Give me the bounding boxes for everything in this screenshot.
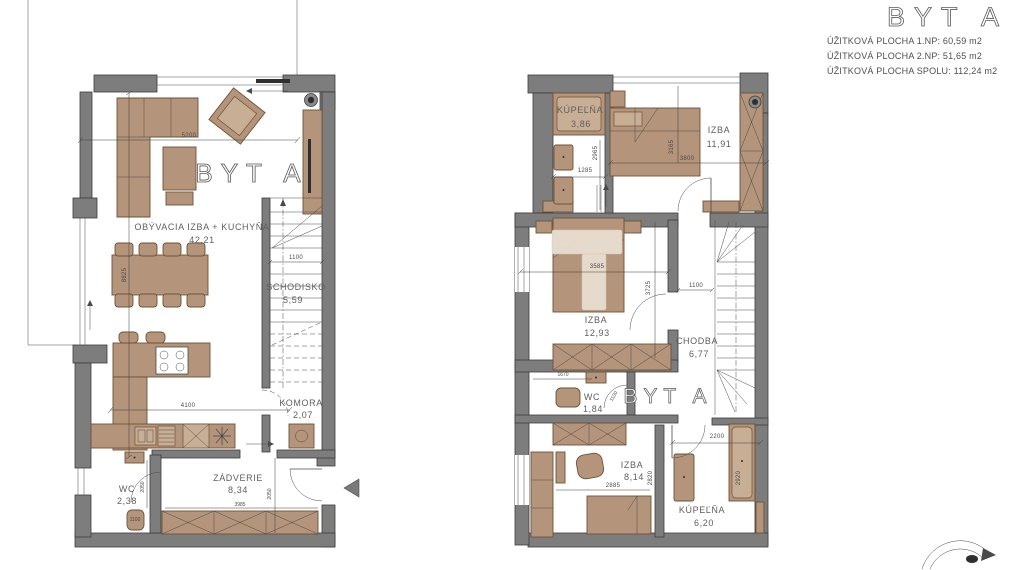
room-area-zadverie: 8,34 — [228, 485, 248, 495]
room-label-living: OBÝVACIA IZBA + KUCHYŇA — [135, 222, 270, 232]
dim-2965: 2965 — [593, 145, 599, 160]
sliding-door-arrow — [246, 441, 274, 447]
dim-2200: 2200 — [710, 434, 725, 440]
dim-8825: 8825 — [122, 267, 128, 282]
column — [305, 94, 318, 107]
room-label-kupelna1: KÚPEĽŇA — [557, 105, 603, 115]
dim-1100-stairs: 1100 — [289, 255, 303, 261]
window-top — [157, 77, 290, 94]
wc2-shelf — [586, 372, 606, 383]
bath2-sink — [674, 454, 694, 501]
dim-4100: 4100 — [181, 403, 196, 409]
dim-2050-wc: 2050 — [140, 481, 146, 492]
room-area-kupelna1: 3,86 — [571, 119, 591, 129]
floor-plan-1: BYT A OBÝVACIA IZBA + KUCHYŇA 42,21 SCHO… — [28, 0, 359, 547]
room-area-chodba: 6,77 — [689, 349, 709, 359]
room-area-wc2: 1,84 — [583, 404, 603, 414]
room-label-izba2: IZBA — [585, 315, 607, 325]
bath1-toilet — [554, 177, 573, 204]
room-area-izba3: 8,14 — [624, 472, 644, 482]
dim-1100-chodba: 1100 — [689, 283, 703, 289]
room-area-wc1: 2,38 — [117, 496, 137, 506]
wc2-toilet — [556, 388, 580, 407]
room-area-komora: 2,07 — [293, 410, 313, 420]
area-line-2: ÚŽITKOVÁ PLOCHA 2.NP: 51,65 m2 — [827, 51, 982, 61]
title-block: BYT A ÚŽITKOVÁ PLOCHA 1.NP: 60,59 m2 ÚŽI… — [827, 2, 1008, 76]
sink — [135, 427, 156, 445]
room-label-izba1: IZBA — [708, 125, 730, 135]
dim-1100-wc: 1100 — [130, 517, 141, 523]
bath1-sink — [554, 145, 573, 170]
ottoman — [166, 192, 193, 205]
dim-3585: 3585 — [590, 264, 605, 270]
dim-3165: 3165 — [669, 139, 675, 154]
dim-5200: 5200 — [182, 133, 197, 139]
wardrobe-1 — [740, 93, 763, 211]
sheet-title: BYT A — [887, 2, 1008, 32]
armchair — [209, 88, 265, 144]
radiator-2 — [703, 201, 739, 212]
floor-plan-2: BYT A KÚPEĽŇA 3,86 IZBA 11,91 IZBA 12,93… — [515, 73, 769, 547]
stove — [156, 347, 188, 374]
apartment-label-2: BYT A — [623, 385, 712, 408]
wardrobe-4 — [531, 452, 553, 537]
bedroom2-door-arc — [630, 294, 666, 330]
room-area-izba2: 12,93 — [584, 328, 610, 338]
room-area-izba1: 11,91 — [707, 139, 732, 149]
room-label-wc1: WC — [119, 484, 135, 494]
desk-chair — [575, 452, 605, 480]
bathtub-2 — [729, 424, 755, 501]
room-area-kupelna2: 6,20 — [694, 518, 714, 528]
hall-wardrobe — [162, 511, 318, 534]
entrance-door — [290, 469, 322, 501]
stairs-plan1 — [268, 198, 324, 388]
cabinet-x — [183, 424, 209, 448]
room-label-wc2: WC — [584, 392, 600, 402]
room-label-zadverie: ZÁDVERIE — [213, 473, 263, 483]
wc-window — [78, 468, 84, 495]
compass-icon — [922, 541, 996, 569]
coffee-table — [163, 147, 196, 190]
bed-3 — [587, 496, 651, 534]
room-label-stairs: SCHODISKO — [266, 282, 325, 292]
radiator-3 — [756, 502, 764, 533]
dim-1670: 1670 — [557, 372, 568, 378]
washing-machine — [289, 424, 314, 448]
washer-circle — [749, 96, 761, 108]
area-line-1: ÚŽITKOVÁ PLOCHA 1.NP: 60,59 m2 — [827, 36, 982, 46]
dim-3800: 3800 — [680, 156, 695, 162]
room-label-chodba: CHODBA — [676, 336, 718, 346]
room-area-living: 42,21 — [189, 235, 215, 245]
room-label-izba3: IZBA — [621, 460, 643, 470]
dishwasher — [158, 426, 175, 446]
desk — [556, 452, 565, 483]
dim-2050-zadverie: 2050 — [267, 488, 273, 499]
entrance-marker — [344, 479, 359, 497]
apartment-label-1: BYT A — [195, 158, 308, 188]
room-label-kupelna2: KÚPEĽŇA — [679, 505, 725, 515]
room-area-stairs: 5,59 — [283, 295, 303, 305]
dim-2885: 2885 — [606, 483, 621, 489]
area-line-3: ÚŽITKOVÁ PLOCHA SPOLU: 112,24 m2 — [827, 66, 997, 76]
wardrobe-3 — [553, 423, 626, 445]
dim-2820: 2820 — [648, 470, 654, 485]
dim-2920: 2920 — [736, 470, 742, 485]
dim-1285: 1285 — [578, 168, 593, 174]
room-label-komora: KOMORA — [279, 398, 323, 408]
floor-plan-sheet: BYT A OBÝVACIA IZBA + KUCHYŇA 42,21 SCHO… — [0, 0, 1011, 570]
terrace-door — [80, 218, 93, 345]
dim-3725: 3725 — [646, 280, 652, 295]
wardrobe-2 — [553, 344, 671, 370]
walls-plan1 — [73, 75, 335, 547]
bath2-door — [672, 425, 705, 458]
dim-3985: 3985 — [234, 502, 245, 508]
